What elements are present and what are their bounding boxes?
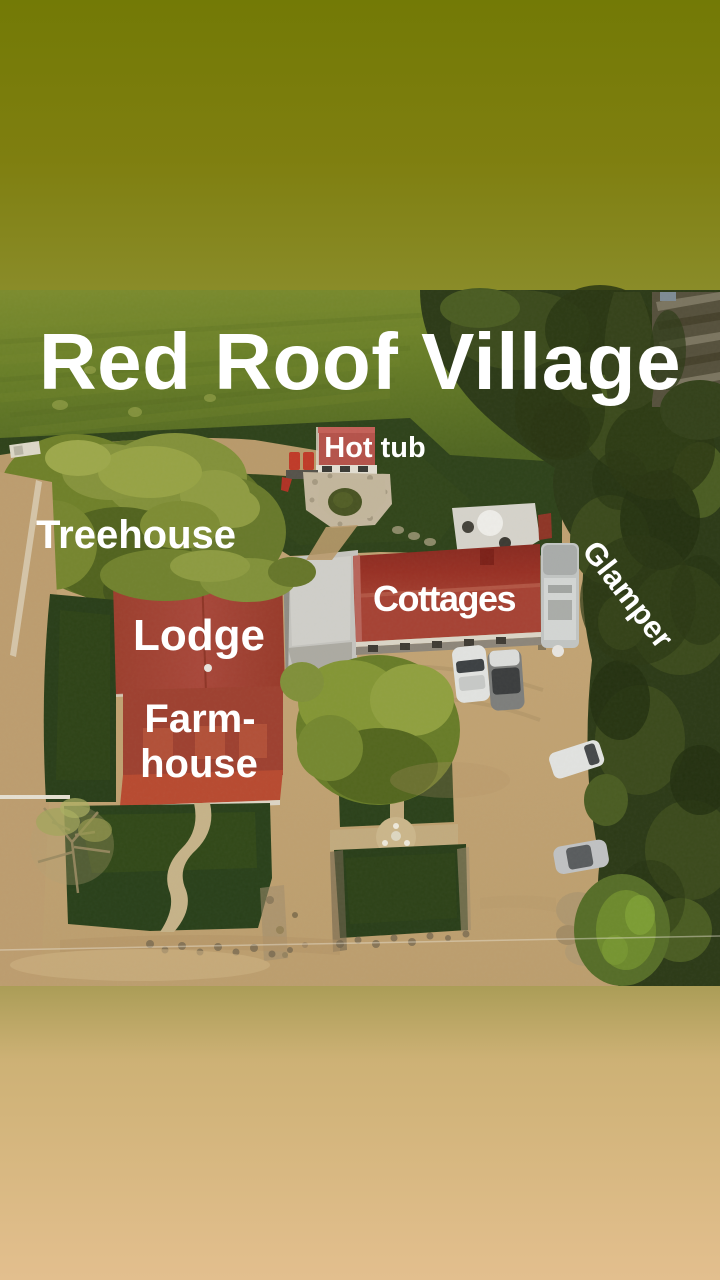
svg-text:Lodge: Lodge (133, 611, 265, 660)
svg-text:Farm-: Farm- (144, 697, 255, 741)
svg-text:Red Roof Village: Red Roof Village (39, 317, 681, 406)
svg-text:Cottages: Cottages (373, 578, 515, 619)
svg-text:house: house (140, 742, 258, 786)
svg-text:Hot tub: Hot tub (324, 432, 425, 464)
svg-text:Treehouse: Treehouse (36, 513, 236, 557)
